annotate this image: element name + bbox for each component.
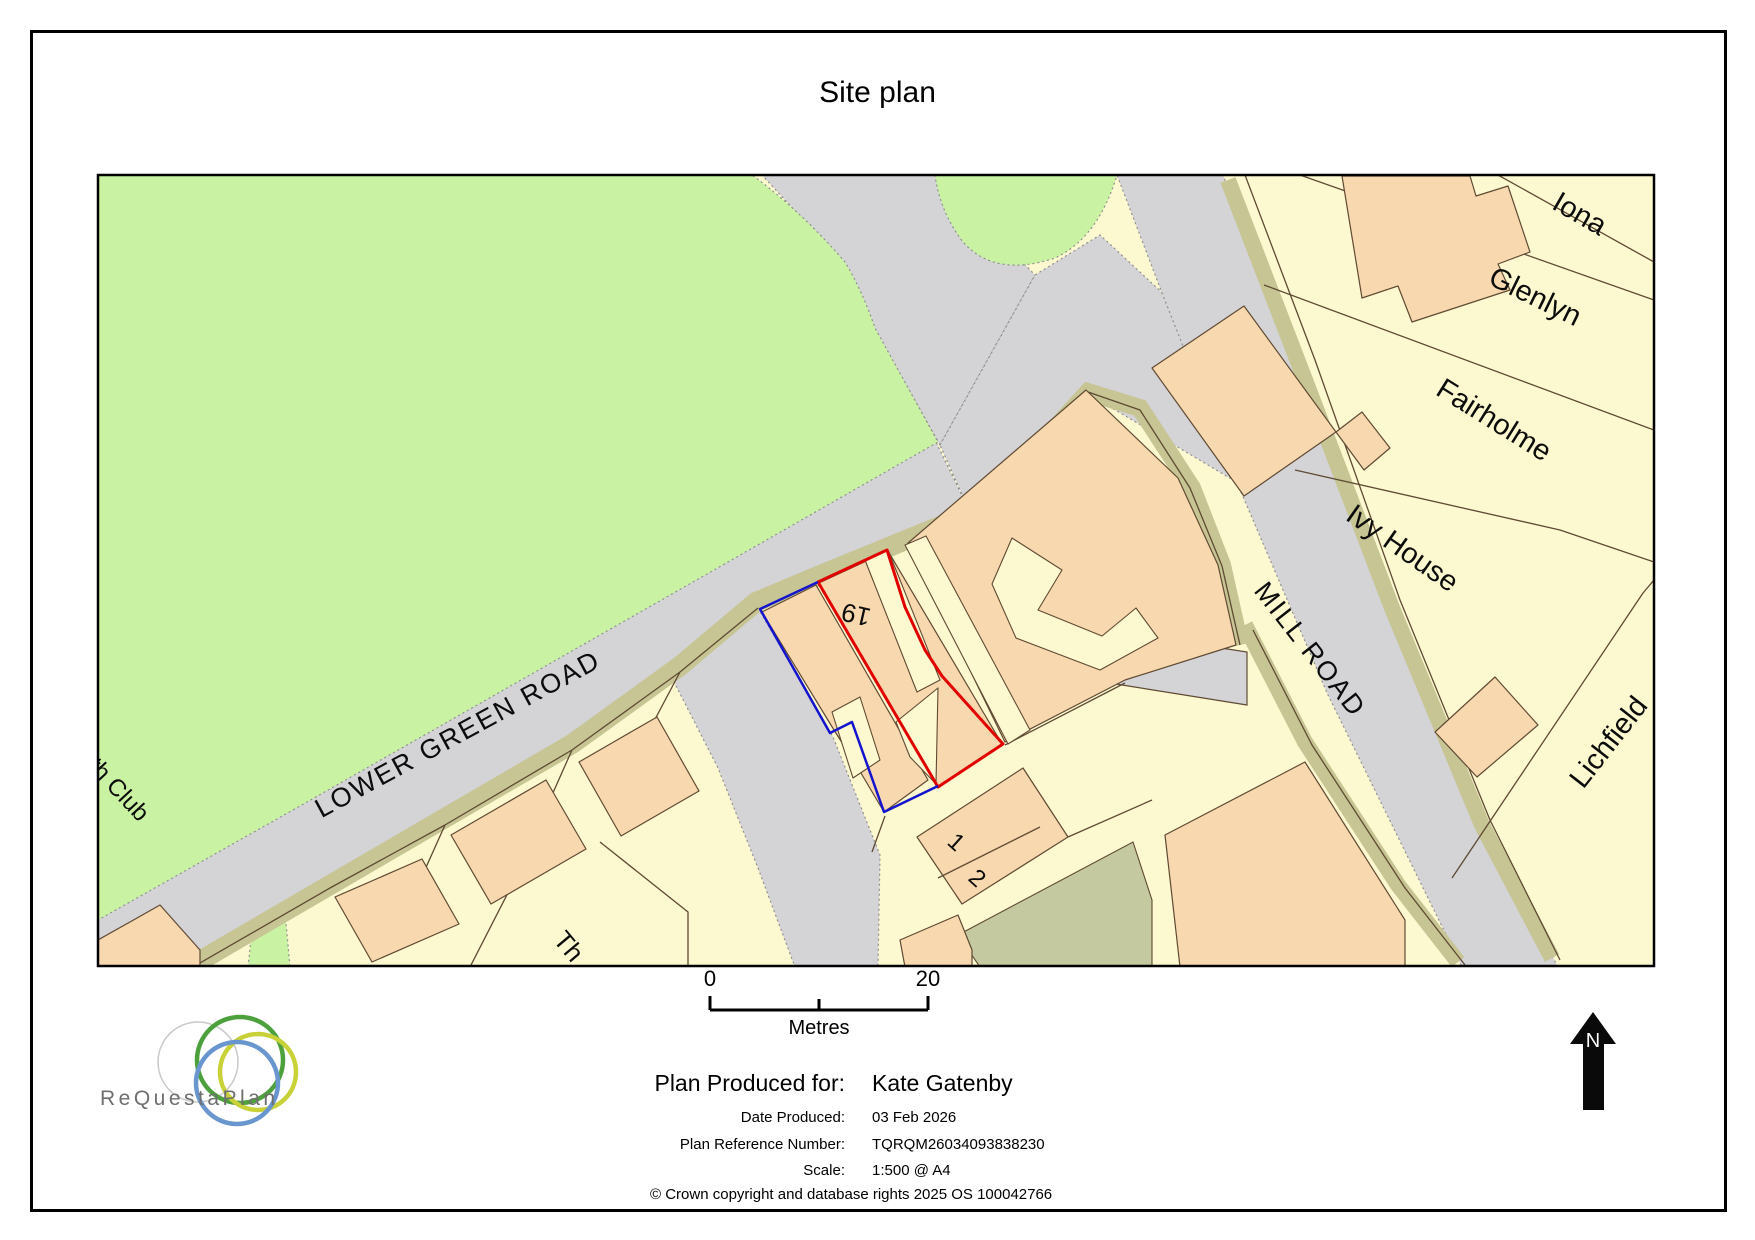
produced-for-label: Plan Produced for: — [345, 1070, 845, 1097]
north-arrow: N — [1570, 1012, 1616, 1110]
plan-reference-label: Plan Reference Number: — [345, 1136, 845, 1153]
scale-value: 1:500 @ A4 — [872, 1162, 951, 1179]
site-plan-map: LOWER GREEN ROAD MILL ROAD Iona Glenlyn … — [0, 0, 1755, 1240]
produced-for-value: Kate Gatenby — [872, 1070, 1013, 1097]
map-canvas: LOWER GREEN ROAD MILL ROAD Iona Glenlyn … — [70, 175, 1654, 967]
scale-bar-unit: Metres — [788, 1017, 849, 1039]
copyright-notice: © Crown copyright and database rights 20… — [650, 1186, 1052, 1203]
site-plan-page: Site plan — [0, 0, 1755, 1240]
logo-brand: ReQuestaPlan — [100, 1087, 279, 1110]
north-label: N — [1586, 1030, 1600, 1052]
scale-bar-end: 20 — [916, 966, 940, 991]
date-produced-label: Date Produced: — [345, 1109, 845, 1126]
logo: ReQuestaPlan — [100, 1017, 296, 1124]
scale-label: Scale: — [345, 1162, 845, 1179]
scale-bar-start: 0 — [704, 966, 716, 991]
date-produced-value: 03 Feb 2026 — [872, 1109, 956, 1126]
scale-bar — [710, 996, 928, 1010]
plan-reference-value: TQRQM26034093838230 — [872, 1136, 1045, 1153]
